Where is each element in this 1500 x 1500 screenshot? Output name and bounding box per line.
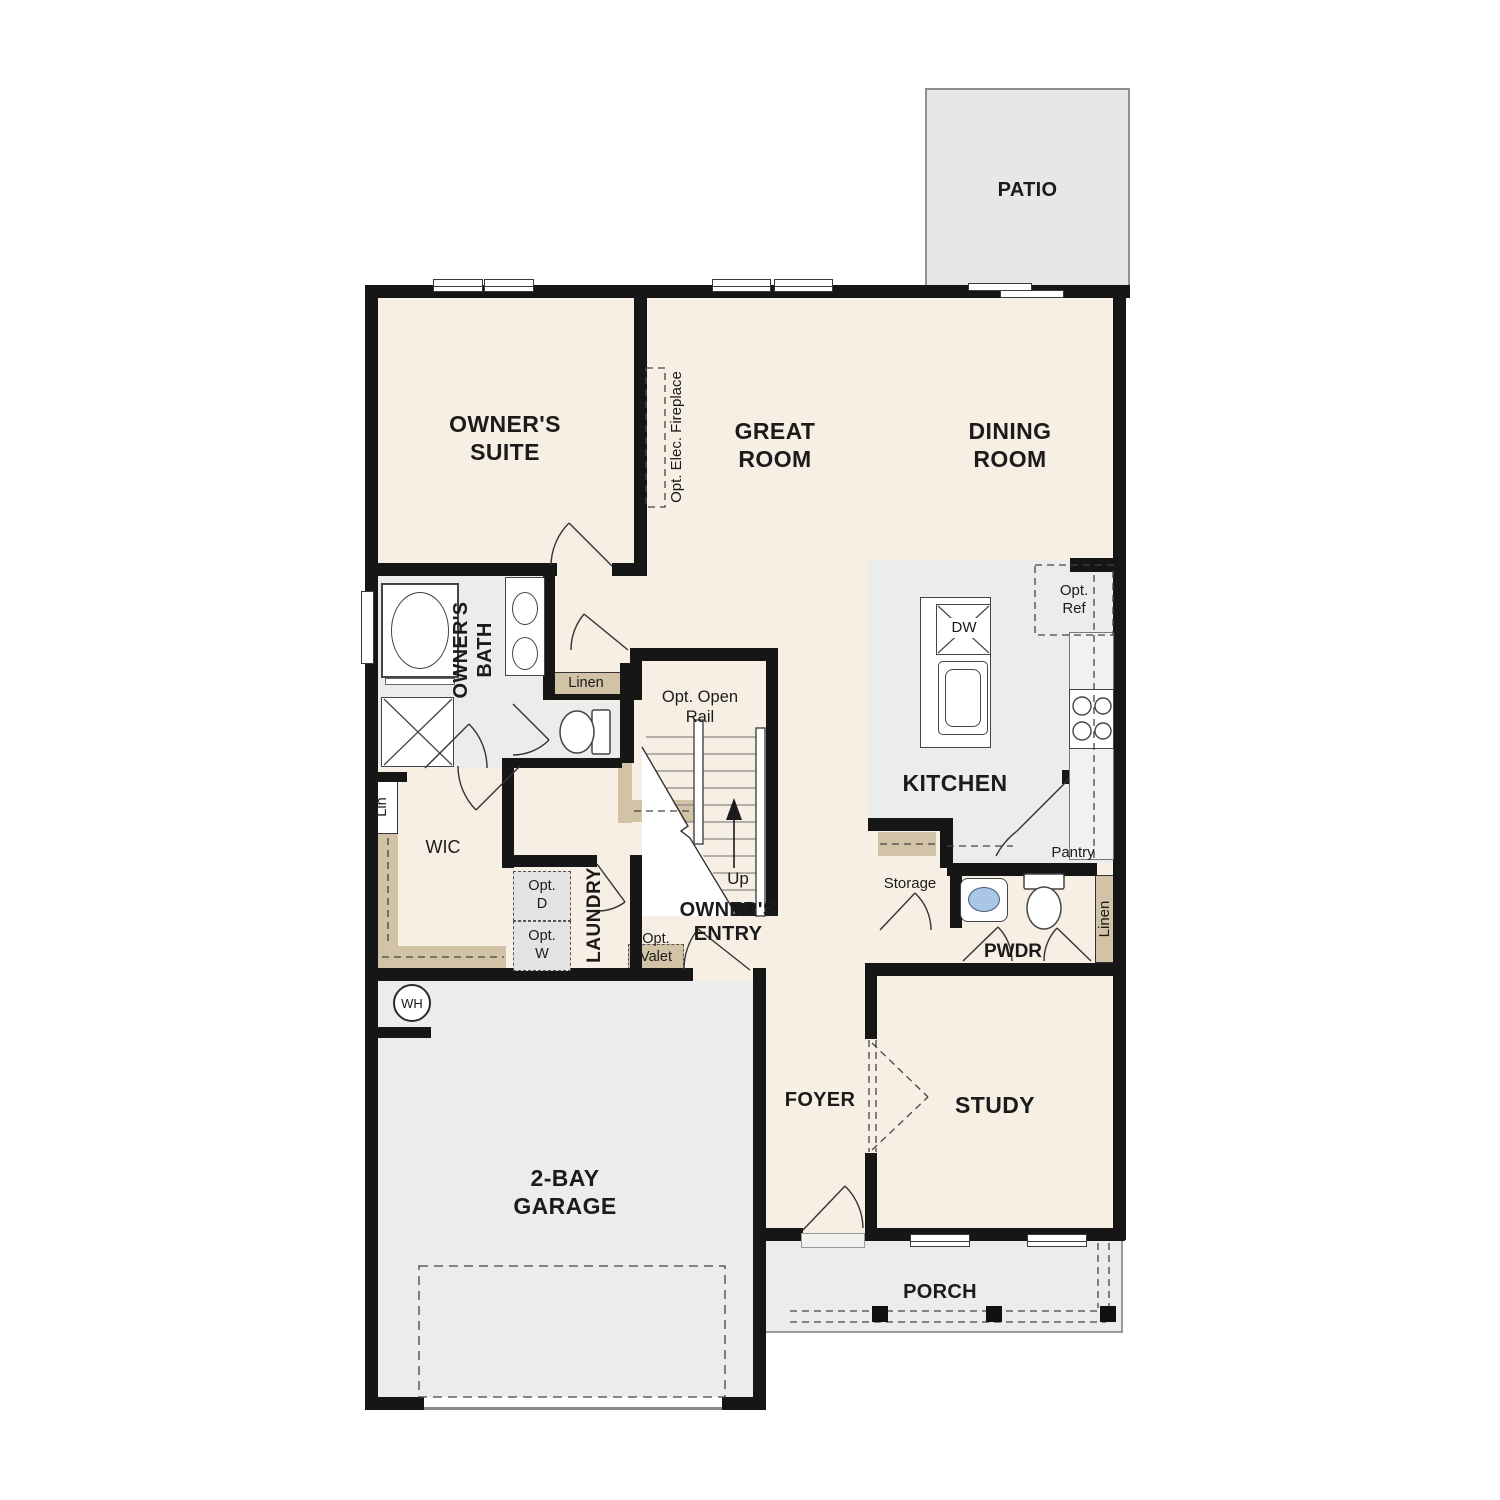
room-label-pwdr: PWDR bbox=[968, 941, 1058, 963]
wall bbox=[365, 285, 378, 1410]
feature-label-pantry: Pantry bbox=[1030, 843, 1116, 863]
window bbox=[910, 1234, 970, 1247]
range bbox=[1069, 689, 1114, 749]
wall bbox=[721, 1397, 766, 1410]
front-door-threshold bbox=[801, 1233, 865, 1248]
feature-label-linen-bath: Linen bbox=[551, 674, 621, 694]
toilet-room-floor bbox=[513, 702, 622, 760]
room-label-patio: PATIO bbox=[925, 177, 1130, 203]
wall bbox=[868, 818, 948, 831]
wall bbox=[865, 963, 1125, 976]
sink bbox=[512, 592, 538, 625]
room-label-porch: PORCH bbox=[830, 1279, 1050, 1305]
wall bbox=[612, 563, 647, 576]
room-label-storage: Storage bbox=[872, 873, 948, 895]
wall bbox=[940, 818, 953, 868]
room-label-owners-bath: OWNER'S BATH bbox=[450, 585, 496, 715]
garage-door-opening bbox=[424, 1397, 722, 1410]
feature-label-up: Up bbox=[718, 868, 758, 890]
floor-plan: WH bbox=[0, 0, 1500, 1500]
wall bbox=[502, 855, 597, 867]
wall bbox=[551, 694, 621, 700]
window bbox=[433, 279, 483, 292]
room-label-dining-room: DINING ROOM bbox=[900, 415, 1120, 475]
room-label-laundry: LAUNDRY bbox=[584, 852, 606, 978]
room-label-kitchen: KITCHEN bbox=[845, 768, 1065, 798]
wall bbox=[630, 648, 778, 661]
storage-shelf bbox=[878, 832, 936, 856]
feature-label-fireplace: Opt. Elec. Fireplace bbox=[668, 337, 686, 537]
wall bbox=[634, 285, 647, 570]
pwdr-sink-basin bbox=[968, 887, 1000, 912]
wall bbox=[1070, 558, 1113, 572]
bathtub-basin bbox=[391, 592, 449, 669]
feature-label-opt-d: Opt. D bbox=[517, 876, 567, 916]
room-label-owners-suite: OWNER'S SUITE bbox=[395, 408, 615, 468]
window bbox=[1027, 1234, 1087, 1247]
feature-label-opt-ref: Opt. Ref bbox=[1036, 580, 1112, 620]
feature-label-opt-w: Opt. W bbox=[517, 926, 567, 966]
wall bbox=[753, 968, 766, 1410]
room-label-study: STUDY bbox=[885, 1090, 1105, 1120]
understair-opening bbox=[630, 800, 694, 822]
wall bbox=[947, 863, 1097, 876]
island-sink-basin bbox=[945, 669, 981, 727]
window bbox=[484, 279, 534, 292]
feature-label-dw: DW bbox=[940, 618, 988, 638]
room-label-great-room: GREAT ROOM bbox=[665, 415, 885, 475]
wall bbox=[766, 648, 778, 916]
feature-label-opt-open-rail: Opt. Open Rail bbox=[648, 686, 752, 728]
sink bbox=[512, 637, 538, 670]
feature-label-linen-pwdr: Linen bbox=[1094, 872, 1116, 966]
wall bbox=[505, 758, 622, 768]
room-label-garage: 2-BAY GARAGE bbox=[455, 1162, 675, 1222]
wall bbox=[502, 758, 514, 868]
wall bbox=[365, 772, 407, 782]
bathtub-deck bbox=[385, 678, 455, 685]
shower bbox=[381, 697, 454, 767]
wall bbox=[365, 563, 557, 576]
room-label-wic: WIC bbox=[405, 836, 481, 860]
room-label-foyer: FOYER bbox=[762, 1088, 878, 1112]
wall bbox=[865, 975, 877, 1039]
water-heater-label: WH bbox=[401, 996, 423, 1011]
wall bbox=[630, 648, 642, 700]
wall bbox=[865, 1153, 877, 1228]
feature-label-lin: Lin bbox=[374, 787, 392, 827]
wall bbox=[765, 1228, 803, 1241]
window bbox=[712, 279, 771, 292]
window bbox=[774, 279, 833, 292]
wic-shelf-bottom bbox=[378, 946, 506, 968]
wall bbox=[365, 1397, 425, 1410]
sliding-door bbox=[1000, 290, 1064, 298]
feature-label-opt-valet: Opt. Valet bbox=[626, 928, 686, 970]
water-heater: WH bbox=[393, 984, 431, 1022]
wall bbox=[365, 1027, 431, 1038]
window bbox=[361, 591, 374, 664]
